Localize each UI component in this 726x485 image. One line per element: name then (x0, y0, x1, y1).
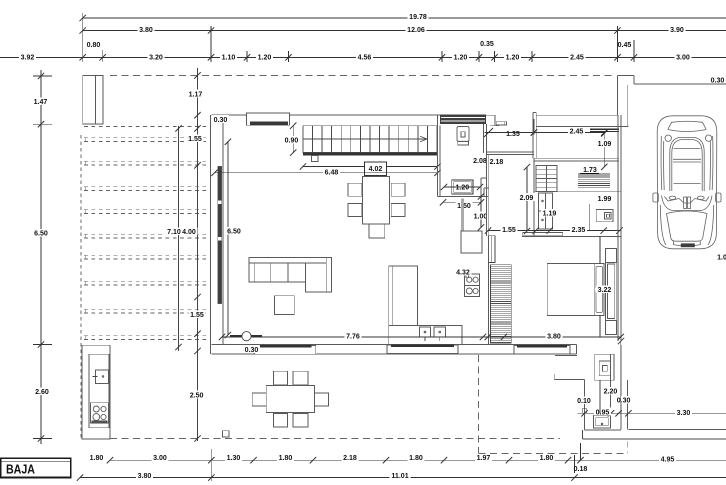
svg-text:3.00: 3.00 (676, 54, 690, 61)
svg-text:4.95: 4.95 (661, 457, 675, 464)
svg-text:3.22: 3.22 (598, 287, 612, 294)
svg-text:6.50: 6.50 (34, 231, 48, 238)
svg-text:1.99: 1.99 (598, 196, 612, 203)
svg-text:0.30: 0.30 (245, 347, 259, 354)
svg-text:2.20: 2.20 (604, 389, 618, 396)
svg-text:0.30: 0.30 (617, 398, 631, 405)
svg-text:4.00: 4.00 (182, 229, 196, 236)
svg-text:0.35: 0.35 (480, 41, 494, 48)
svg-text:11.01: 11.01 (391, 473, 408, 480)
svg-text:1.20: 1.20 (454, 54, 468, 61)
svg-text:3.30: 3.30 (677, 410, 691, 417)
svg-text:12.06: 12.06 (407, 27, 425, 34)
svg-text:2.45: 2.45 (570, 129, 584, 136)
svg-text:1.80: 1.80 (90, 455, 104, 462)
svg-text:0.80: 0.80 (87, 42, 101, 49)
svg-text:0.90: 0.90 (285, 138, 299, 145)
svg-text:1.35: 1.35 (506, 131, 520, 138)
svg-text:1.80: 1.80 (540, 455, 554, 462)
svg-text:2.45: 2.45 (570, 54, 584, 61)
svg-text:2.18: 2.18 (343, 455, 357, 462)
svg-text:1.10: 1.10 (222, 54, 236, 61)
svg-text:2.08: 2.08 (473, 158, 487, 165)
svg-text:1.55: 1.55 (190, 312, 204, 319)
svg-text:0.10: 0.10 (577, 398, 591, 405)
svg-text:0.30: 0.30 (711, 78, 725, 85)
svg-text:1.80: 1.80 (409, 455, 423, 462)
svg-text:4.56: 4.56 (358, 54, 372, 61)
svg-text:1.20: 1.20 (506, 54, 520, 61)
svg-text:1.20: 1.20 (258, 54, 272, 61)
svg-text:0.30: 0.30 (214, 117, 228, 124)
svg-text:1.97: 1.97 (477, 455, 491, 462)
svg-text:2.35: 2.35 (572, 227, 586, 234)
svg-text:BAJA: BAJA (6, 461, 35, 476)
svg-text:1.19: 1.19 (543, 211, 557, 218)
svg-text:6.48: 6.48 (325, 169, 339, 176)
svg-text:1.20: 1.20 (455, 185, 469, 192)
svg-text:0.95: 0.95 (596, 409, 610, 416)
svg-text:2.50: 2.50 (190, 392, 204, 399)
svg-text:7.76: 7.76 (346, 334, 360, 341)
svg-text:1.30: 1.30 (227, 455, 241, 462)
svg-text:1.0: 1.0 (717, 255, 726, 262)
svg-text:1.09: 1.09 (598, 141, 612, 148)
svg-text:0.18: 0.18 (574, 466, 588, 473)
svg-text:4.32: 4.32 (456, 270, 470, 277)
svg-text:1.17: 1.17 (189, 91, 203, 98)
svg-text:6.50: 6.50 (227, 229, 241, 236)
svg-text:3.90: 3.90 (670, 27, 684, 34)
svg-text:3.80: 3.80 (139, 27, 153, 34)
svg-text:3.00: 3.00 (153, 455, 167, 462)
svg-text:1.55: 1.55 (502, 227, 516, 234)
svg-text:7.10: 7.10 (167, 229, 181, 236)
svg-text:1.00: 1.00 (474, 213, 488, 220)
svg-text:2.60: 2.60 (35, 389, 49, 396)
svg-text:0.45: 0.45 (618, 42, 632, 49)
svg-text:2.18: 2.18 (490, 159, 504, 166)
svg-text:2.09: 2.09 (520, 195, 534, 202)
svg-text:1.47: 1.47 (34, 99, 48, 106)
svg-text:3.20: 3.20 (149, 54, 163, 61)
svg-text:1.80: 1.80 (279, 455, 293, 462)
svg-text:1.55: 1.55 (188, 136, 202, 143)
svg-text:4.02: 4.02 (369, 166, 383, 173)
svg-text:19.78: 19.78 (409, 14, 427, 21)
svg-text:3.92: 3.92 (21, 54, 35, 61)
svg-text:3.80: 3.80 (547, 334, 561, 341)
svg-text:3.80: 3.80 (138, 473, 152, 480)
